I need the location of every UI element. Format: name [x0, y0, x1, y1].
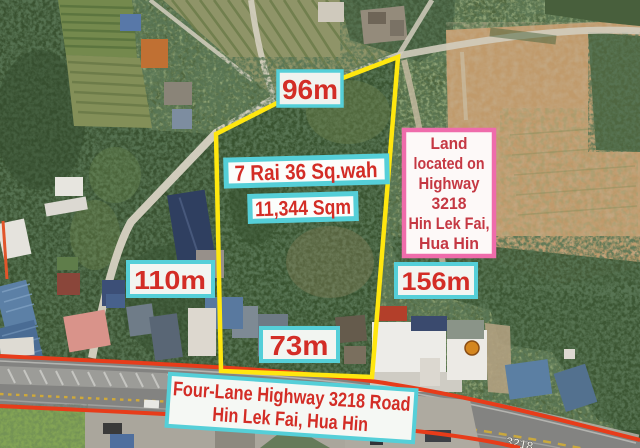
- svg-text:Hua Hin: Hua Hin: [419, 234, 479, 253]
- svg-text:11,344 Sqm: 11,344 Sqm: [255, 196, 352, 222]
- svg-text:Hin Lek Fai,: Hin Lek Fai,: [409, 214, 490, 233]
- svg-text:156m: 156m: [402, 268, 471, 296]
- svg-text:7 Rai 36 Sq.wah: 7 Rai 36 Sq.wah: [234, 157, 378, 186]
- svg-text:Highway: Highway: [419, 174, 480, 193]
- svg-text:73m: 73m: [270, 330, 329, 361]
- svg-text:3218: 3218: [432, 194, 467, 213]
- svg-text:96m: 96m: [282, 74, 338, 105]
- svg-text:Land: Land: [431, 134, 468, 153]
- svg-text:110m: 110m: [134, 265, 206, 295]
- svg-text:located on: located on: [414, 154, 485, 173]
